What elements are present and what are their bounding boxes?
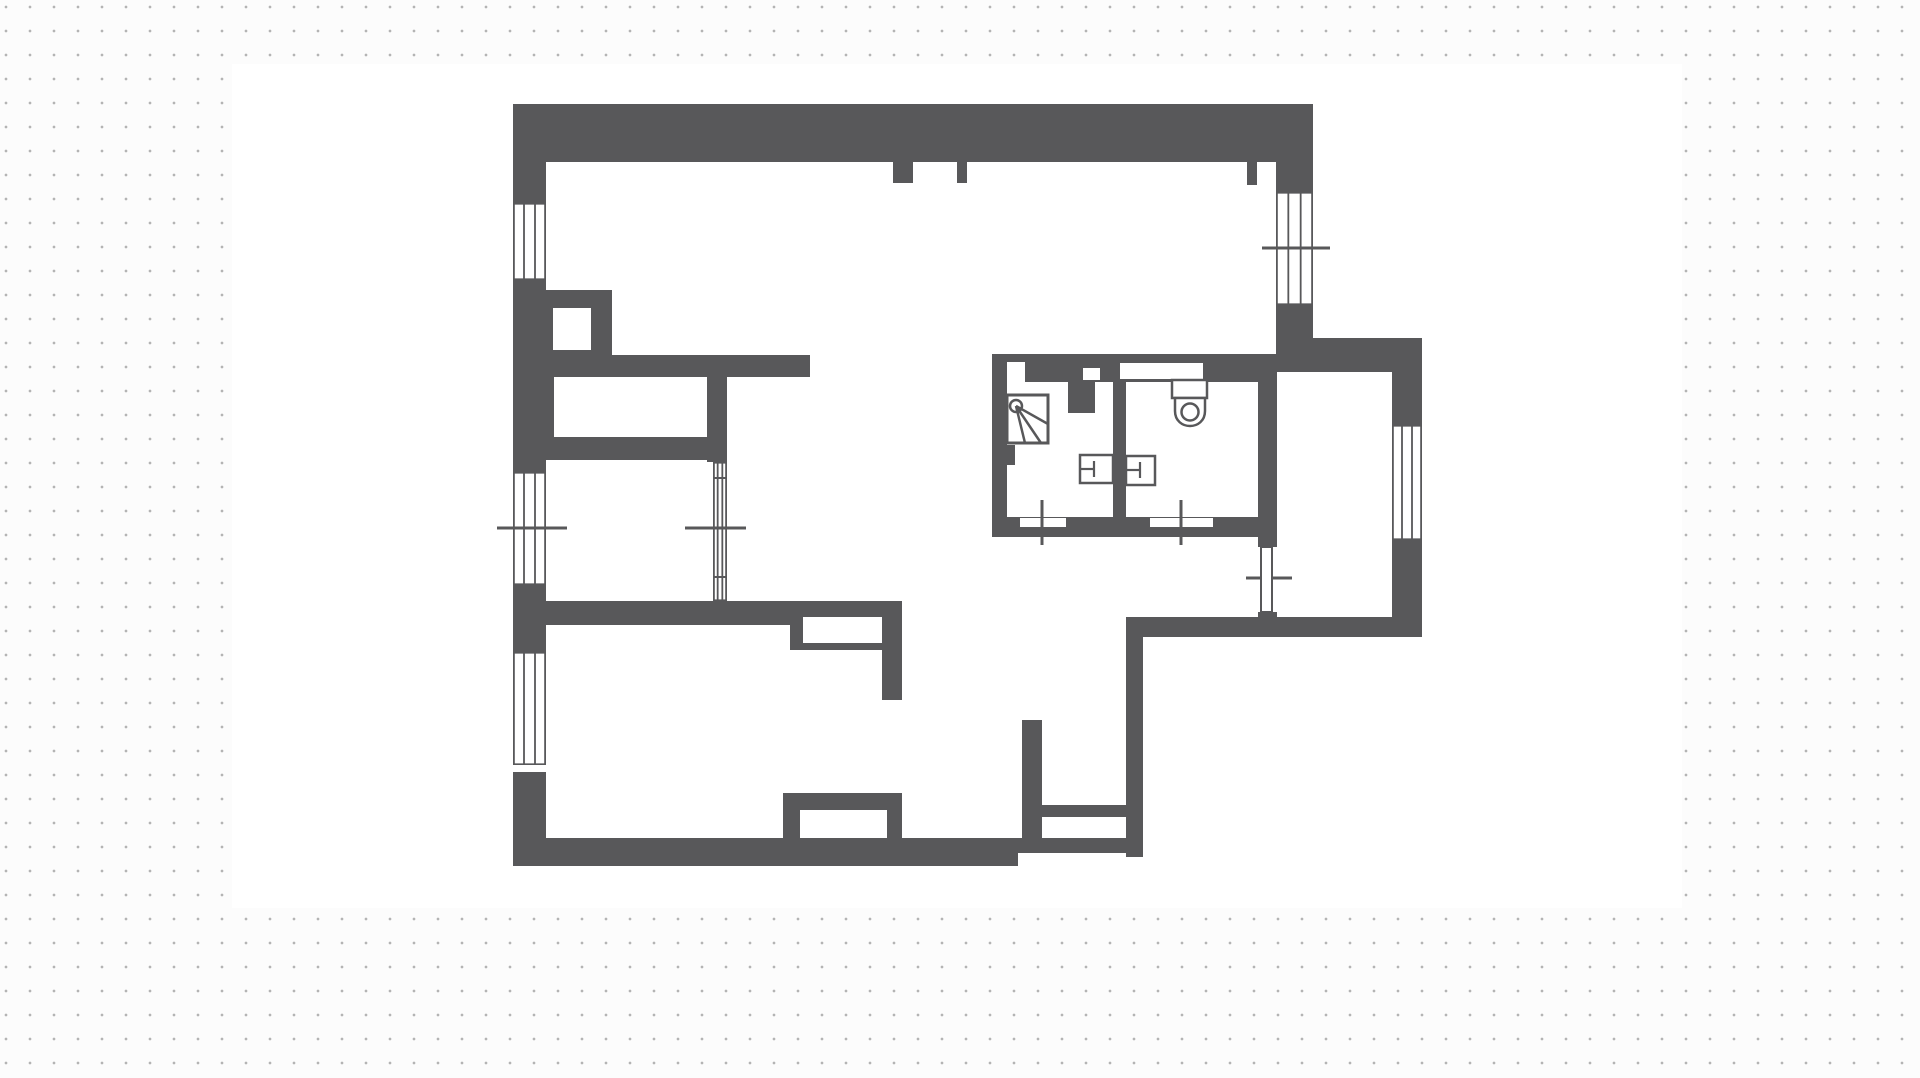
wall-segment bbox=[1276, 305, 1313, 338]
pocket-slot bbox=[803, 617, 882, 643]
wall-segment bbox=[1392, 372, 1422, 425]
wall-segment bbox=[513, 162, 546, 203]
wall-segment bbox=[1022, 720, 1042, 853]
wall-segment bbox=[1042, 805, 1128, 817]
window-right bbox=[1392, 425, 1422, 540]
wall-segment bbox=[513, 437, 717, 460]
wall-segment bbox=[513, 838, 1018, 866]
wall-segment bbox=[1068, 382, 1095, 413]
wall-segment bbox=[887, 793, 902, 838]
wall-segment bbox=[882, 617, 902, 700]
wardrobe-niche bbox=[1042, 817, 1126, 838]
wall-segment bbox=[1113, 379, 1126, 517]
wall-segment bbox=[1247, 162, 1257, 185]
right-room-door-leaf bbox=[1261, 547, 1272, 612]
wall-segment bbox=[893, 162, 913, 183]
bath-corner-notch bbox=[1007, 362, 1025, 382]
glazed-partition bbox=[713, 462, 727, 601]
toilet-seat bbox=[1182, 404, 1199, 421]
wall-segment bbox=[1007, 445, 1015, 465]
wall-segment bbox=[1276, 162, 1313, 192]
wall-segment bbox=[513, 617, 790, 625]
wall-segment bbox=[513, 601, 902, 617]
window-left-bottom bbox=[513, 652, 546, 765]
wall-segment bbox=[513, 104, 1313, 162]
wall-segment bbox=[783, 793, 800, 838]
wall-segment bbox=[1126, 635, 1143, 857]
wall-segment bbox=[1258, 382, 1277, 537]
shaft-niche bbox=[553, 308, 591, 350]
wall-segment bbox=[1276, 338, 1422, 372]
closet-slot bbox=[554, 377, 707, 437]
wall-segment bbox=[800, 793, 887, 810]
wall-segment bbox=[1258, 537, 1277, 547]
wc-cistern-recess bbox=[1120, 363, 1203, 379]
wall-segment bbox=[803, 643, 882, 650]
wall-segment bbox=[546, 377, 554, 437]
radiator-niche bbox=[800, 810, 887, 838]
wall-segment bbox=[790, 617, 803, 650]
wall-segment bbox=[992, 382, 1007, 517]
floor-plan-page bbox=[0, 0, 1920, 1078]
floor-plan-svg bbox=[0, 0, 1920, 1078]
toilet-cistern bbox=[1172, 380, 1207, 398]
wall-segment bbox=[546, 355, 810, 377]
window-left-top bbox=[513, 203, 546, 280]
bath-wall-square bbox=[1083, 368, 1100, 380]
wall-segment bbox=[957, 162, 967, 183]
wall-segment bbox=[1258, 612, 1277, 637]
